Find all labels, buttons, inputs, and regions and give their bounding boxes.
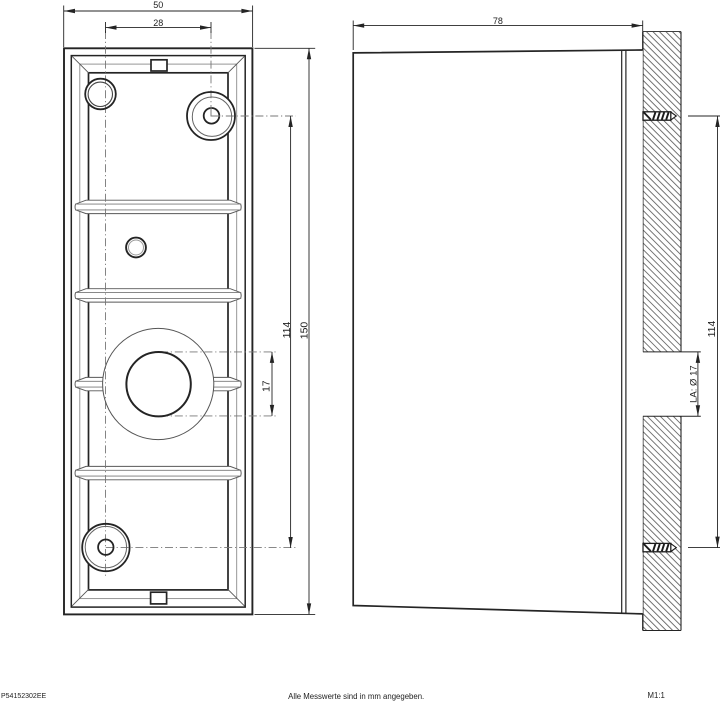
svg-text:114: 114: [706, 320, 718, 337]
svg-text:150: 150: [299, 322, 311, 340]
svg-text:LA: Ø 17: LA: Ø 17: [688, 365, 699, 403]
svg-text:114: 114: [281, 321, 293, 338]
svg-text:78: 78: [493, 16, 503, 26]
svg-text:Alle Messwerte sind in mm ange: Alle Messwerte sind in mm angegeben.: [288, 692, 424, 701]
svg-text:17: 17: [261, 380, 273, 392]
svg-text:50: 50: [153, 0, 163, 10]
svg-text:M1:1: M1:1: [648, 691, 665, 700]
svg-text:28: 28: [153, 18, 163, 28]
svg-text:P54152302EE: P54152302EE: [1, 693, 46, 700]
